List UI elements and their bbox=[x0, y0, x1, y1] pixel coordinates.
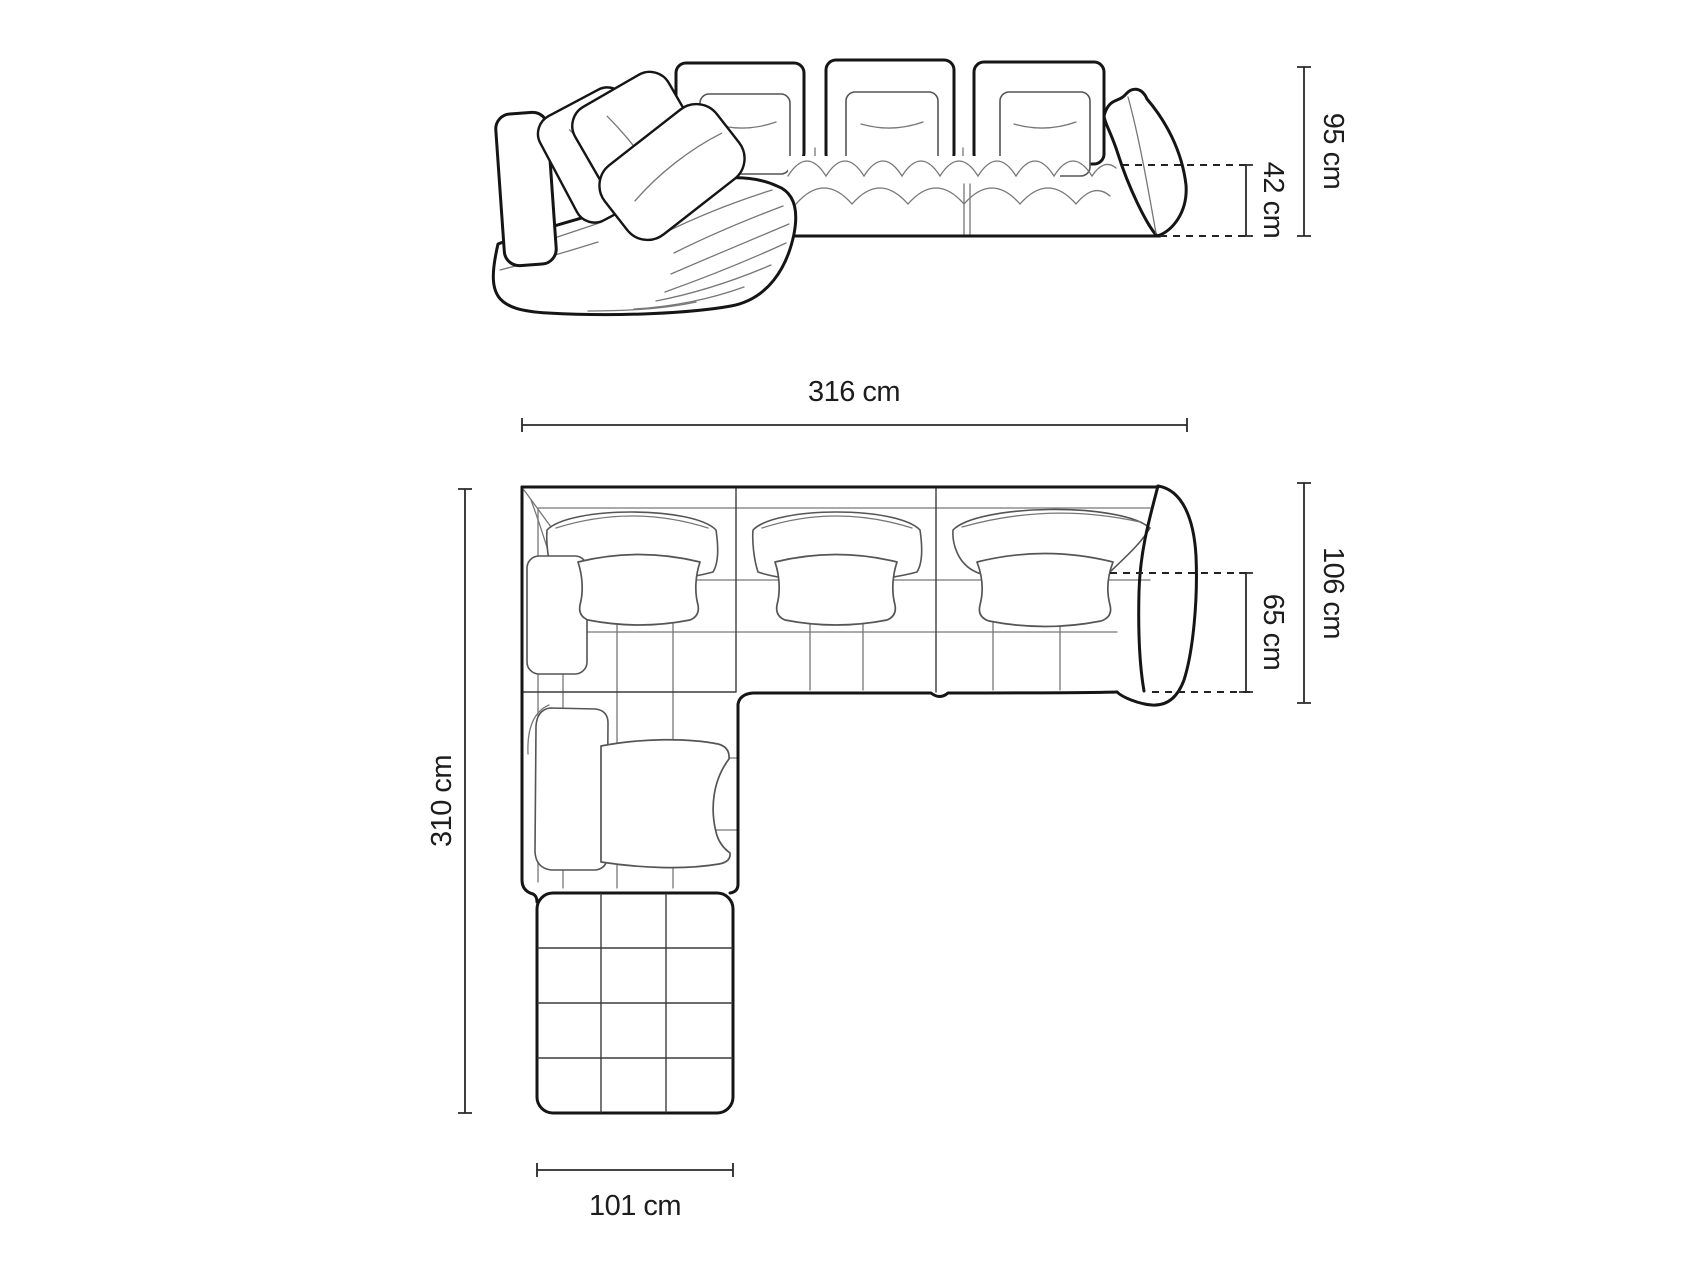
dimension-chaise-width: 101 cm bbox=[537, 1163, 733, 1222]
dim-label-seat-height: 42 cm bbox=[1257, 162, 1289, 238]
dimension-total-width: 316 cm bbox=[522, 376, 1187, 432]
chaise-seat-pillow bbox=[601, 740, 730, 868]
ottoman-module bbox=[537, 893, 733, 1113]
dimension-total-height: 95 cm bbox=[1297, 67, 1349, 236]
dim-label-total-depth: 310 cm bbox=[426, 755, 458, 847]
plan-seat-front-edge bbox=[730, 692, 1117, 893]
front-view: 42 cm 95 cm bbox=[493, 60, 1349, 315]
dim-label-chaise-width: 101 cm bbox=[589, 1190, 681, 1222]
dimension-seat-height: 42 cm bbox=[1239, 162, 1289, 238]
seat-pillow bbox=[977, 554, 1113, 627]
corner-side-cushion bbox=[527, 556, 587, 674]
dimension-total-depth: 310 cm bbox=[426, 489, 472, 1113]
seat-pillow bbox=[775, 555, 897, 626]
front-seat-block bbox=[788, 156, 1060, 236]
dim-label-total-width: 316 cm bbox=[808, 376, 900, 408]
chaise-back-cushion bbox=[535, 708, 608, 870]
front-right-arm bbox=[1104, 89, 1186, 236]
dim-label-seat-depth: 65 cm bbox=[1257, 594, 1289, 670]
dimension-body-depth: 106 cm bbox=[1297, 483, 1349, 703]
plan-seat-pillows bbox=[578, 554, 1113, 627]
dimension-seat-depth: 65 cm bbox=[1239, 573, 1289, 692]
dim-label-total-height: 95 cm bbox=[1317, 113, 1349, 189]
top-view: 316 cm 310 cm 106 cm 65 cm 101 cm bbox=[426, 376, 1349, 1222]
sofa-dimension-drawing: 42 cm 95 cm bbox=[0, 0, 1706, 1279]
drawing-canvas: 42 cm 95 cm bbox=[0, 0, 1706, 1279]
plan-right-arm-inner bbox=[1139, 486, 1158, 691]
seat-pillow bbox=[578, 555, 700, 626]
dim-label-body-depth: 106 cm bbox=[1317, 547, 1349, 639]
